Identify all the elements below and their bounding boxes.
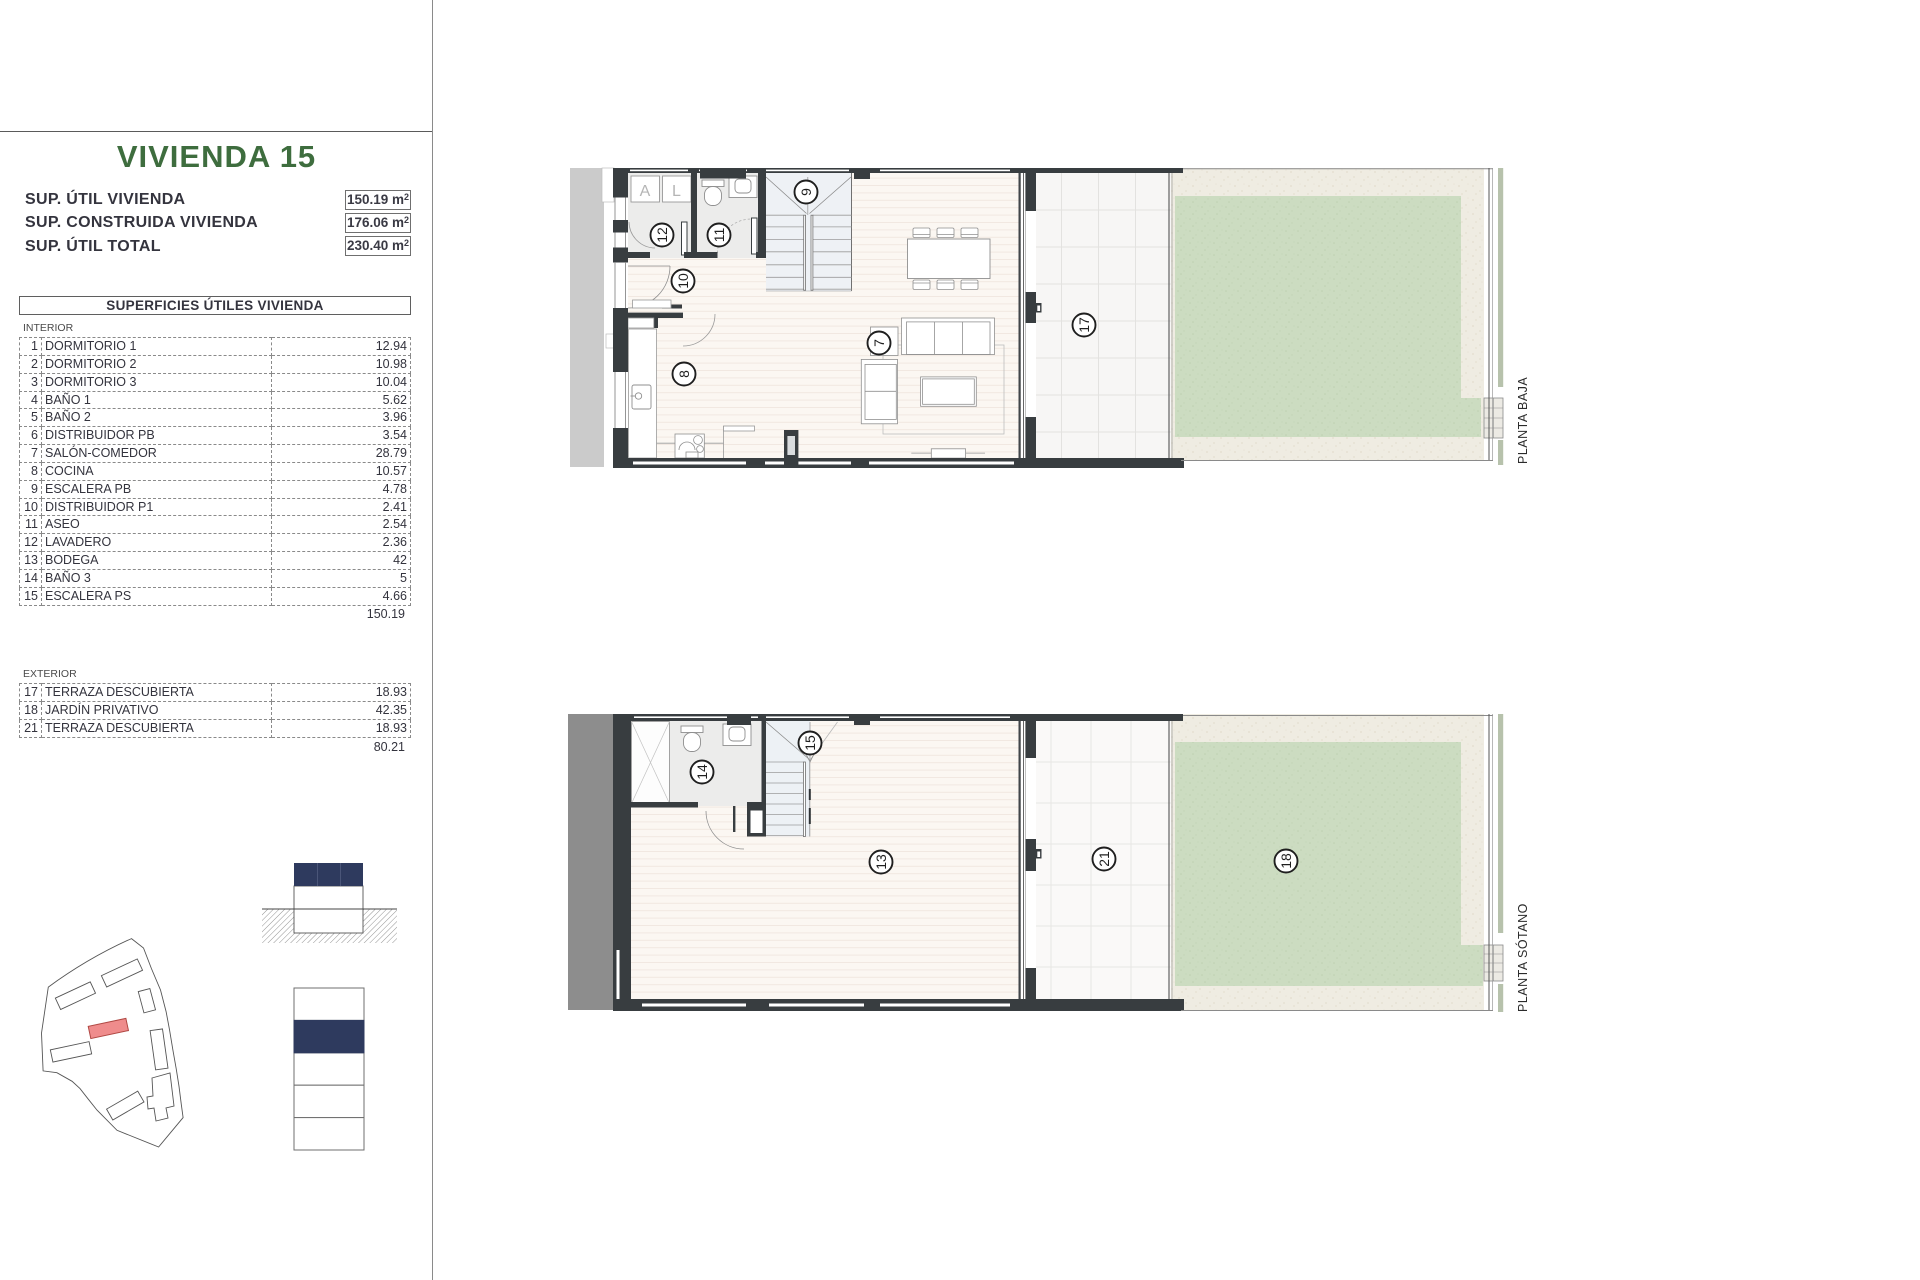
svg-text:8: 8 [676, 370, 692, 378]
svg-text:PLANTA BAJA: PLANTA BAJA [1516, 377, 1530, 464]
svg-text:14: 14 [694, 764, 710, 780]
svg-text:9: 9 [798, 188, 814, 196]
svg-text:18: 18 [1278, 853, 1294, 869]
svg-text:A: A [640, 183, 651, 200]
svg-text:10: 10 [675, 273, 691, 289]
svg-text:15: 15 [802, 735, 818, 751]
svg-text:21: 21 [1096, 851, 1112, 867]
svg-text:L: L [672, 183, 681, 200]
svg-text:PLANTA SÓTANO: PLANTA SÓTANO [1515, 903, 1530, 1012]
svg-text:11: 11 [711, 228, 727, 243]
svg-text:17: 17 [1076, 317, 1092, 333]
svg-text:13: 13 [873, 854, 889, 870]
svg-text:12: 12 [654, 227, 670, 243]
svg-text:7: 7 [871, 339, 887, 347]
